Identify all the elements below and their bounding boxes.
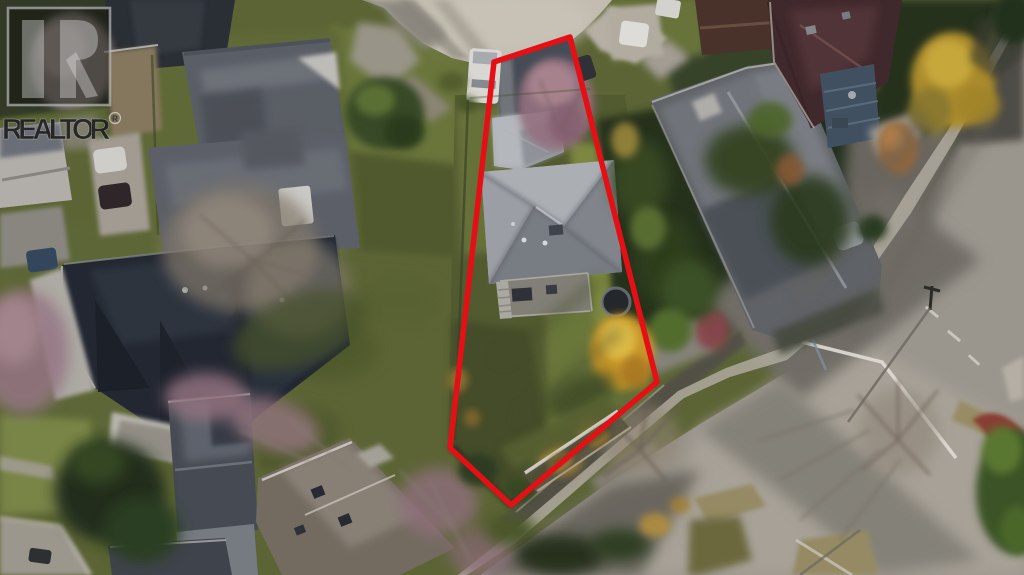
svg-text:REALTOR: REALTOR [2, 114, 111, 146]
svg-text:R: R [112, 115, 118, 124]
